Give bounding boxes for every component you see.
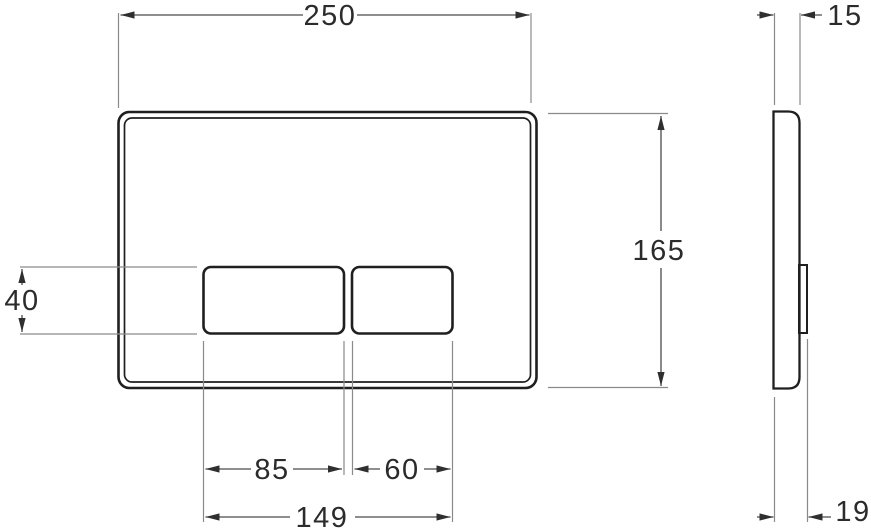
plate-inner-outline	[125, 118, 531, 382]
label-buttons-span-width: 149	[296, 502, 349, 528]
label-plate-depth: 15	[827, 0, 862, 32]
small-flush-button	[352, 267, 453, 334]
label-large-button-width: 85	[254, 454, 289, 486]
label-plate-height: 165	[633, 235, 686, 267]
dimension-labels: 250 15 165 40 85 60 149 19	[4, 0, 870, 528]
drawing-svg: 250 15 165 40 85 60 149 19	[0, 0, 871, 528]
label-button-height: 40	[4, 285, 39, 317]
label-small-button-width: 60	[384, 454, 419, 486]
label-depth-with-button: 19	[835, 496, 870, 528]
plate-outer-outline	[119, 112, 537, 388]
side-view	[774, 112, 808, 389]
label-plate-width: 250	[304, 0, 357, 32]
front-view	[119, 112, 537, 388]
side-profile-outline	[774, 112, 800, 389]
technical-drawing-canvas: 250 15 165 40 85 60 149 19	[0, 0, 871, 528]
large-flush-button	[204, 267, 345, 334]
